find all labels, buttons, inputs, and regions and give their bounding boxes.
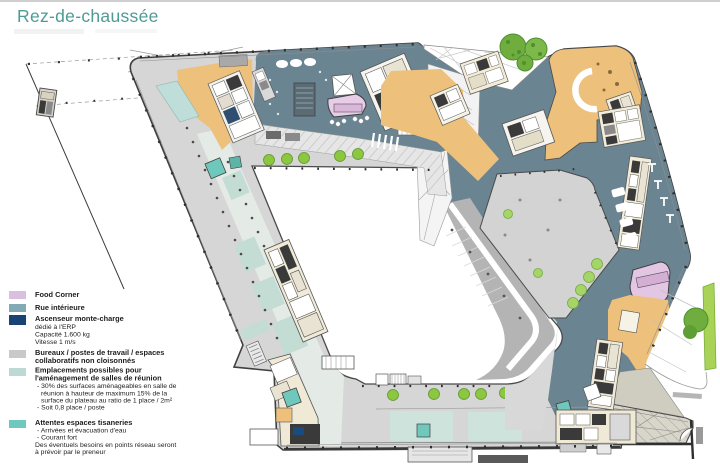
svg-text:Vitesse 1 m/s: Vitesse 1 m/s — [35, 339, 76, 346]
svg-text:- Soit 0,8 place / poste: - Soit 0,8 place / poste — [37, 405, 105, 412]
svg-text:- 30% des surfaces aménageable: - 30% des surfaces aménageables en salle… — [37, 383, 177, 390]
svg-text:Rez-de-chaussée: Rez-de-chaussée — [17, 6, 159, 26]
svg-text:Capacité 1.600 kg: Capacité 1.600 kg — [35, 332, 90, 339]
svg-text:à prévoir par le preneur: à prévoir par le preneur — [35, 449, 106, 456]
svg-text:Attentes espaces tisaneries: Attentes espaces tisaneries — [35, 418, 132, 427]
svg-text:l'aménagement de salles de réu: l'aménagement de salles de réunion — [35, 374, 162, 383]
svg-text:Rue intérieure: Rue intérieure — [35, 303, 85, 312]
svg-text:Ascenseur monte-charge: Ascenseur monte-charge — [35, 314, 124, 323]
svg-text:Food Corner: Food Corner — [35, 290, 79, 299]
svg-text:- Arrivées et évacuation d'eau: - Arrivées et évacuation d'eau — [37, 428, 127, 435]
svg-text:dédié à l'ERP: dédié à l'ERP — [35, 324, 76, 331]
svg-text:collaboratifs non cloisonnés: collaboratifs non cloisonnés — [35, 356, 135, 365]
svg-text:- Courant fort: - Courant fort — [37, 435, 77, 442]
svg-text:Des éventuels besoins en point: Des éventuels besoins en points réseau s… — [35, 442, 176, 449]
svg-text:surface du plateau au ratio de: surface du plateau au ratio de 1 place /… — [41, 398, 173, 405]
svg-text:réunion à hauteur de maximum 1: réunion à hauteur de maximum 15% de la — [41, 391, 167, 398]
